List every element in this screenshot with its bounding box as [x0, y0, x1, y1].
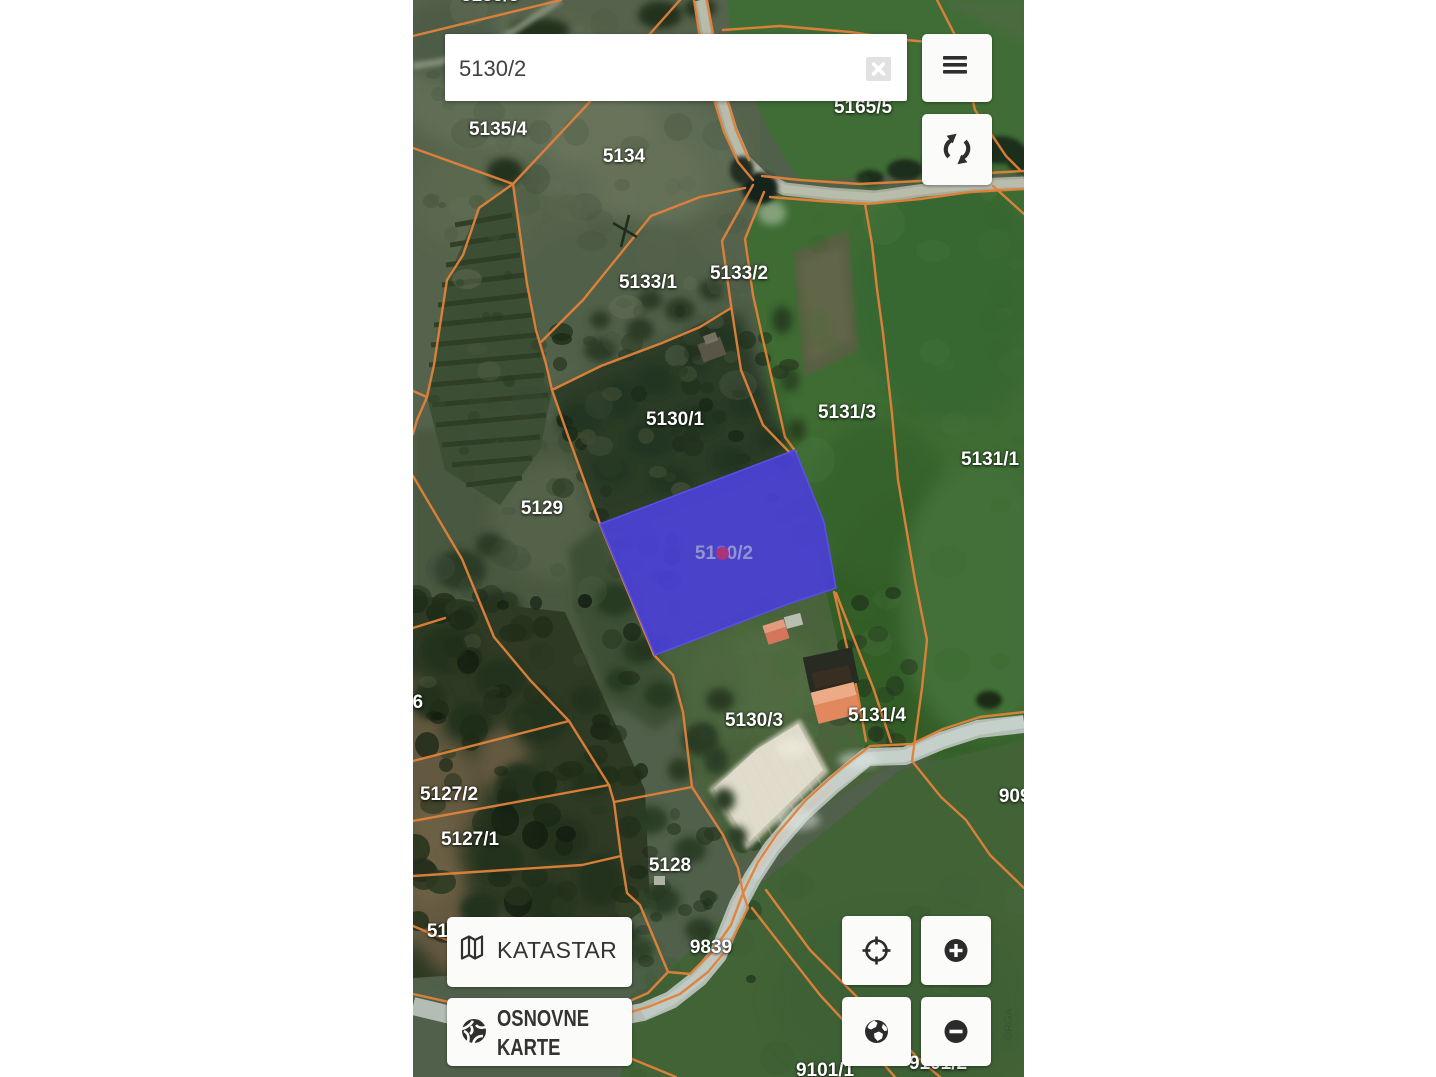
- svg-text:©RGA: ©RGA: [1003, 1007, 1015, 1040]
